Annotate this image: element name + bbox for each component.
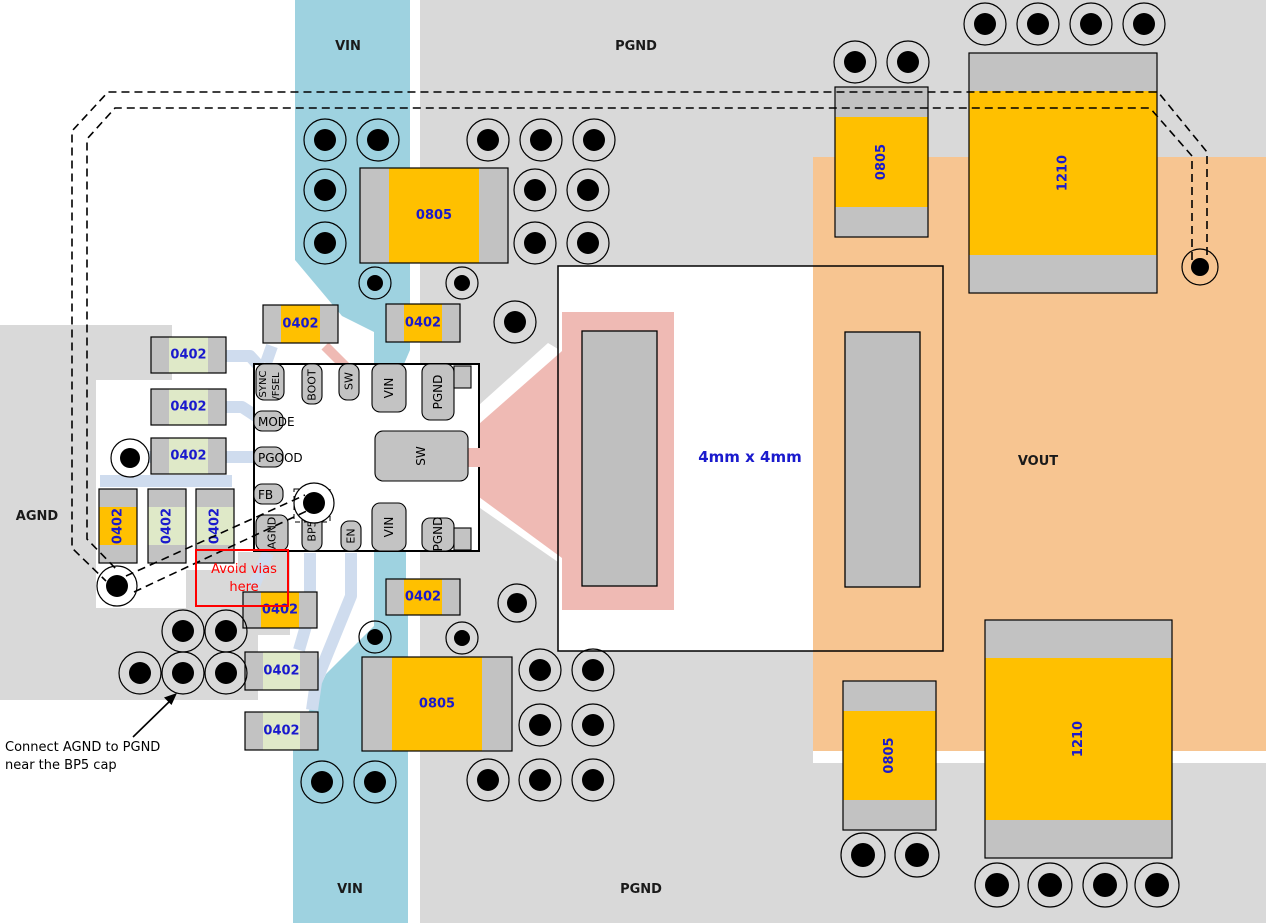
via-drill <box>577 179 599 201</box>
inductor-pad-sw <box>582 331 657 586</box>
component-terminal <box>442 304 460 342</box>
via-drill <box>477 129 499 151</box>
component-0402: 0402 <box>151 438 226 474</box>
region-label-vout: VOUT <box>1018 454 1058 469</box>
via <box>294 483 334 523</box>
component-terminal <box>969 53 1157 91</box>
component-terminal <box>148 489 186 507</box>
connect-agnd-annotation: Connect AGND to PGNDnear the BP5 cap <box>5 693 177 773</box>
connect-agnd-text: Connect AGND to PGND <box>5 740 160 755</box>
via-drill <box>524 232 546 254</box>
ic-pin-pad-notch <box>454 366 471 388</box>
via-drill <box>1093 873 1117 897</box>
component-terminal <box>99 545 137 563</box>
via-drill <box>905 843 929 867</box>
component-size-label: 0402 <box>160 508 175 544</box>
component-terminal <box>360 168 389 263</box>
via-drill <box>172 662 194 684</box>
component-terminal <box>985 820 1172 858</box>
via-drill <box>529 659 551 681</box>
via-drill <box>314 232 336 254</box>
component-terminal <box>299 592 317 628</box>
component-terminal <box>362 657 392 751</box>
ic-pin-label: VIN <box>382 517 396 538</box>
component-terminal <box>151 438 169 474</box>
component-terminal <box>208 438 226 474</box>
component-terminal <box>843 681 936 711</box>
via-drill <box>1038 873 1062 897</box>
via-drill <box>1027 13 1049 35</box>
component-size-label: 0805 <box>882 737 897 773</box>
component-size-label: 0402 <box>263 664 299 679</box>
via-drill <box>303 492 325 514</box>
ic-pin-label: VIN <box>382 378 396 399</box>
via-drill <box>120 448 140 468</box>
ic-pin-label: MODE <box>258 415 295 429</box>
ic-pin-label: PGND <box>431 517 445 552</box>
ic-pin-label: /FSEL <box>271 372 282 400</box>
ic-pin-label: PGOOD <box>258 451 303 465</box>
component-terminal <box>835 207 928 237</box>
component-terminal <box>386 304 404 342</box>
component-size-label: 0402 <box>170 449 206 464</box>
component-1210: 1210 <box>969 53 1157 293</box>
component-size-label: 0402 <box>170 348 206 363</box>
component-size-label: 0402 <box>405 590 441 605</box>
component-terminal <box>482 657 512 751</box>
component-0805: 0805 <box>362 657 512 751</box>
component-size-label: 0402 <box>111 508 126 544</box>
via-drill <box>367 129 389 151</box>
via-drill <box>507 593 527 613</box>
via-drill <box>583 129 605 151</box>
ic-pin-pad-notch <box>454 528 471 550</box>
via-drill <box>172 620 194 642</box>
region-label-agnd: AGND <box>16 509 59 524</box>
component-terminal <box>985 620 1172 658</box>
pcb-layout-figure: 0805040204020402040204020402040204020402… <box>0 0 1266 923</box>
component-size-label: 0402 <box>405 316 441 331</box>
component-terminal <box>969 255 1157 293</box>
region-label-pgnd: PGND <box>615 39 657 54</box>
component-terminal <box>245 712 263 750</box>
component-0805: 0805 <box>360 168 508 263</box>
component-0805: 0805 <box>843 681 936 830</box>
component-size-label: 1210 <box>1071 721 1086 757</box>
component-1210: 1210 <box>985 620 1172 858</box>
avoid-vias-text: here <box>229 580 258 595</box>
component-terminal <box>843 800 936 830</box>
via-drill <box>582 714 604 736</box>
component-size-label: 0402 <box>262 603 298 618</box>
via-drill <box>582 659 604 681</box>
connect-agnd-text: near the BP5 cap <box>5 758 117 773</box>
region-label-vin: VIN <box>337 882 363 897</box>
component-terminal <box>245 652 263 690</box>
via-drill <box>974 13 996 35</box>
ic-pin-label: FB <box>258 488 273 502</box>
component-size-label: 0805 <box>874 144 889 180</box>
pcb-layout-canvas: 0805040204020402040204020402040204020402… <box>0 0 1266 923</box>
component-0402: 0402 <box>386 304 460 342</box>
via-drill <box>582 769 604 791</box>
component-size-label: 1210 <box>1056 155 1071 191</box>
via-drill <box>129 662 151 684</box>
component-0402: 0402 <box>386 579 460 615</box>
via-drill <box>851 843 875 867</box>
ic-pin-label: BOOT <box>306 369 319 401</box>
component-0402: 0402 <box>245 652 318 690</box>
component-terminal <box>300 712 318 750</box>
via-drill <box>530 129 552 151</box>
ic-pin-label: AGND <box>266 517 279 550</box>
via-drill <box>454 630 470 646</box>
via-drill <box>504 311 526 333</box>
via-drill <box>215 662 237 684</box>
region-label-vin: VIN <box>335 39 361 54</box>
component-0402: 0402 <box>245 712 318 750</box>
via-drill <box>844 51 866 73</box>
avoid-vias-text: Avoid vias <box>211 562 277 577</box>
annotation-arrow-line <box>133 699 172 737</box>
ic-pin-label: SW <box>414 446 428 466</box>
region-label-pgnd: PGND <box>620 882 662 897</box>
ic-pin-label: PGND <box>431 375 445 410</box>
component-terminal <box>263 305 281 343</box>
via-drill <box>367 275 383 291</box>
component-terminal <box>320 305 338 343</box>
via-drill <box>364 771 386 793</box>
ic-pin-label: BP5 <box>306 520 319 541</box>
component-size-label: 0805 <box>419 697 455 712</box>
component-0402: 0402 <box>151 337 226 373</box>
via <box>97 566 137 606</box>
component-terminal <box>300 652 318 690</box>
component-0402: 0402 <box>196 489 234 563</box>
via-drill <box>314 129 336 151</box>
component-0805: 0805 <box>835 87 928 237</box>
component-terminal <box>442 579 460 615</box>
via-drill <box>1145 873 1169 897</box>
component-0402: 0402 <box>151 389 226 425</box>
component-0402: 0402 <box>243 592 317 628</box>
component-0402: 0402 <box>263 305 338 343</box>
via-drill <box>577 232 599 254</box>
component-terminal <box>148 545 186 563</box>
component-size-label: 0402 <box>263 724 299 739</box>
component-size-label: 0805 <box>416 208 452 223</box>
via-drill <box>529 769 551 791</box>
ic-size-label: 4mm x 4mm <box>698 448 802 466</box>
via <box>111 439 149 477</box>
via-drill <box>529 714 551 736</box>
inductor-pad-vout <box>845 332 920 587</box>
component-terminal <box>99 489 137 507</box>
via-drill <box>524 179 546 201</box>
via-drill <box>985 873 1009 897</box>
via-drill <box>106 575 128 597</box>
ic-pin-label: EN <box>345 528 358 543</box>
sw-pad-stub <box>468 448 480 467</box>
via-drill <box>897 51 919 73</box>
component-terminal <box>196 489 234 507</box>
component-terminal <box>151 337 169 373</box>
component-size-label: 0402 <box>282 317 318 332</box>
via-drill <box>454 275 470 291</box>
signal-trace <box>266 346 272 363</box>
via-drill <box>477 769 499 791</box>
via-drill <box>215 620 237 642</box>
component-terminal <box>386 579 404 615</box>
component-terminal <box>208 389 226 425</box>
via-drill <box>367 629 383 645</box>
via-drill <box>1191 258 1209 276</box>
component-size-label: 0402 <box>170 400 206 415</box>
ic-footprint: SYNC/FSELBOOTSWVINPGNDAGNDBP5ENVINPGNDMO… <box>254 364 480 551</box>
component-0402: 0402 <box>99 489 137 563</box>
via-drill <box>311 771 333 793</box>
ic-pin-label: SYNC <box>258 371 269 398</box>
via-drill <box>1080 13 1102 35</box>
via-drill <box>1133 13 1155 35</box>
ic-pin-label: SW <box>343 372 356 390</box>
component-terminal <box>479 168 508 263</box>
via-drill <box>314 179 336 201</box>
component-terminal <box>151 389 169 425</box>
component-terminal <box>208 337 226 373</box>
